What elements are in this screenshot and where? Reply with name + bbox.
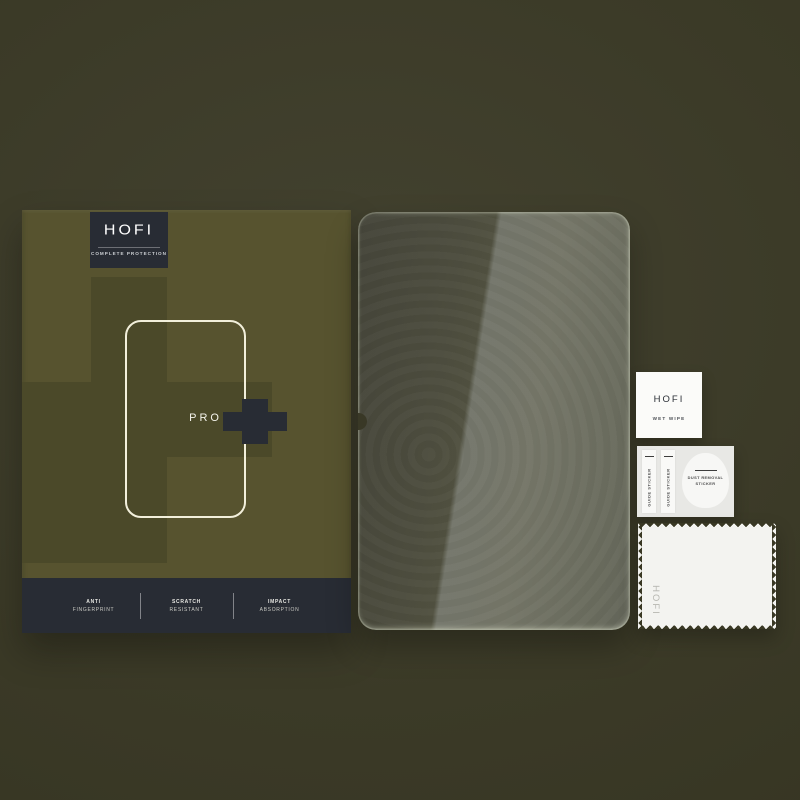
retail-box: HOFI COMPLETE PROTECTION PRO ANTI FINGER… bbox=[22, 210, 351, 633]
guide-sticker: GUIDE STICKER bbox=[642, 450, 656, 513]
guide-sticker-label: GUIDE STICKER bbox=[666, 468, 671, 506]
brand-panel: HOFI COMPLETE PROTECTION bbox=[90, 212, 168, 268]
plus-icon bbox=[242, 399, 268, 444]
wet-wipe-brand: HOFI bbox=[654, 395, 685, 404]
zigzag-edge-top bbox=[638, 523, 776, 527]
microfiber-cloth: HOFI bbox=[638, 523, 776, 629]
feature-anti-fingerprint: ANTI FINGERPRINT bbox=[48, 598, 140, 613]
dust-removal-label: STICKER bbox=[696, 481, 716, 487]
sticker-dash bbox=[664, 456, 673, 457]
product-photo-stage: HOFI COMPLETE PROTECTION PRO ANTI FINGER… bbox=[0, 0, 800, 800]
brand-logo: HOFI bbox=[104, 224, 154, 239]
guide-sticker-label: GUIDE STICKER bbox=[647, 468, 652, 506]
model-label: PRO bbox=[180, 413, 222, 424]
wet-wipe-label: WET WIPE bbox=[653, 416, 686, 421]
dust-removal-sticker: DUST REMOVAL STICKER bbox=[682, 453, 729, 508]
wet-wipe-sachet: HOFI WET WIPE bbox=[636, 372, 702, 438]
sticker-sheet: GUIDE STICKER GUIDE STICKER DUST REMOVAL… bbox=[637, 446, 734, 517]
brand-tagline: COMPLETE PROTECTION bbox=[91, 251, 167, 256]
feature-bar: ANTI FINGERPRINT SCRATCH RESISTANT IMPAC… bbox=[22, 578, 351, 633]
cloth-brand: HOFI bbox=[642, 579, 668, 621]
brand-divider bbox=[98, 247, 160, 248]
sticker-dash bbox=[645, 456, 654, 457]
feature-impact-absorption: IMPACT ABSORPTION bbox=[234, 598, 326, 613]
guide-sticker: GUIDE STICKER bbox=[661, 450, 675, 513]
zigzag-edge-bottom bbox=[638, 625, 776, 629]
sticker-dash bbox=[695, 470, 717, 471]
camera-cutout bbox=[358, 413, 367, 430]
feature-scratch-resistant: SCRATCH RESISTANT bbox=[141, 598, 233, 613]
tempered-glass-protector bbox=[358, 212, 630, 630]
zigzag-edge-right bbox=[772, 523, 776, 629]
box-pattern-corner bbox=[22, 457, 92, 563]
